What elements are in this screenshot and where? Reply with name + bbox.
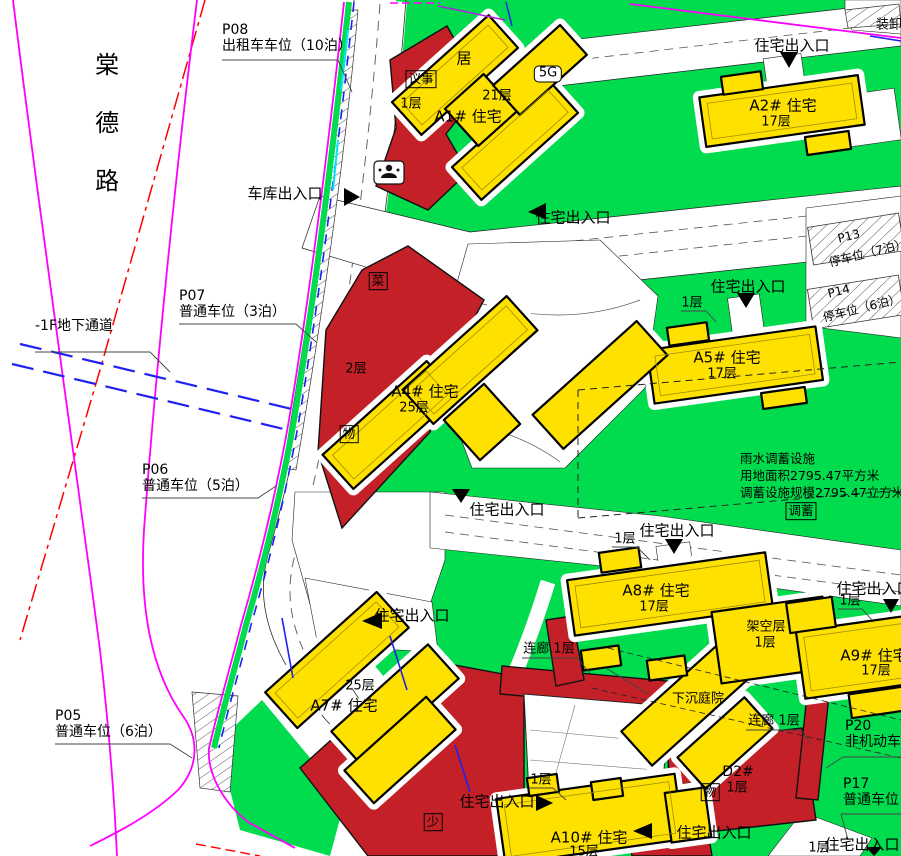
a8-floors: 17层 bbox=[639, 601, 669, 616]
corridor-label-left: 连廊 1层 bbox=[523, 643, 574, 658]
p06-desc: 普通车位（5泊） bbox=[142, 478, 249, 494]
floor-label-a5-podium: 1层 bbox=[681, 297, 702, 312]
stilt-floor-label: 架空层 bbox=[746, 621, 785, 636]
a1-name: A1# 住宅 bbox=[434, 108, 501, 125]
floor-label-a8-podium: 1层 bbox=[614, 533, 635, 548]
entrance-label-a10-left: 住宅出入口 bbox=[459, 793, 534, 810]
a7-floors: 25层 bbox=[345, 680, 375, 695]
entrance-label-top-right: 住宅出入口 bbox=[754, 37, 829, 54]
d2-floors: 1层 bbox=[726, 782, 747, 797]
parking-callout-p06: P06 普通车位（5泊） bbox=[142, 462, 249, 494]
floor-label-a9-podium: 1层 bbox=[839, 595, 860, 610]
loading-label: 装卸 bbox=[876, 19, 901, 34]
p07-id: P07 bbox=[179, 288, 286, 304]
entrance-label-bottom-right: 住宅出入口 bbox=[824, 836, 899, 853]
a8-name: A8# 住宅 bbox=[622, 582, 689, 599]
a9-floors: 17层 bbox=[861, 665, 891, 680]
corridor-label-right: 连廊 1层 bbox=[748, 715, 799, 730]
a5-floors: 17层 bbox=[707, 368, 737, 383]
p08-id: P08 bbox=[222, 22, 352, 38]
a7-name: A7# 住宅 bbox=[310, 697, 377, 714]
p17-desc: 普通车位 bbox=[843, 792, 899, 808]
sunken-courtyard-label: 下沉庭院 bbox=[672, 693, 724, 708]
d2-name: D2# bbox=[722, 764, 753, 780]
entrance-label-a10-right: 住宅出入口 bbox=[676, 824, 751, 841]
p17-id: P17 bbox=[843, 776, 899, 792]
nursery-icon bbox=[374, 161, 404, 184]
p20-desc: 非机动车位 bbox=[845, 734, 901, 750]
p20-id: P20 bbox=[845, 718, 901, 734]
parking-callout-p08: P08 出租车车位（10泊） bbox=[222, 22, 352, 54]
floor-label-a4-podium: 2层 bbox=[345, 363, 366, 378]
parking-callout-p20: P20 非机动车位 bbox=[845, 718, 901, 750]
a1-floors: 21层 bbox=[482, 90, 512, 105]
a2-floors: 17层 bbox=[761, 116, 791, 131]
vegetable-badge: 菜 bbox=[369, 272, 388, 290]
rainwater-line2: 用地面积2795.47平方米 bbox=[740, 467, 901, 484]
rainwater-line1: 雨水调蓄设施 bbox=[740, 450, 901, 467]
road-name: 棠德路 bbox=[90, 52, 118, 226]
p05-id: P05 bbox=[55, 708, 162, 724]
underground-passage-label: -1F地下通道 bbox=[35, 318, 113, 334]
a4-name: A4# 住宅 bbox=[391, 383, 458, 400]
entrance-label-top-center: 住宅出入口 bbox=[535, 209, 610, 226]
parking-callout-p05: P05 普通车位（6泊） bbox=[55, 708, 162, 740]
rainwater-note: 雨水调蓄设施 用地面积2795.47平方米 调蓄设施规模2795.47立方米 bbox=[740, 450, 901, 501]
council-badge: 议事 bbox=[405, 70, 436, 88]
a9-name: A9# 住宅 bbox=[840, 647, 901, 664]
p08-desc: 出租车车位（10泊） bbox=[222, 38, 352, 54]
p07-desc: 普通车位（3泊） bbox=[179, 304, 286, 320]
rainwater-line3: 调蓄设施规模2795.47立方米 bbox=[740, 484, 901, 501]
a4-floors: 25层 bbox=[399, 402, 429, 417]
storage-badge: 调蓄 bbox=[785, 502, 816, 520]
p05-desc: 普通车位（6泊） bbox=[55, 724, 162, 740]
property-badge-a4: 物 bbox=[340, 425, 359, 443]
a10-floors: 15层 bbox=[569, 846, 599, 856]
floor-label-bottom-right: 1层 bbox=[808, 842, 829, 856]
entrance-label-center: 住宅出入口 bbox=[469, 501, 544, 518]
entrance-label-a8: 住宅出入口 bbox=[639, 522, 714, 539]
p06-id: P06 bbox=[142, 462, 249, 478]
entrance-label-a5: 住宅出入口 bbox=[710, 278, 785, 295]
parking-callout-p07: P07 普通车位（3泊） bbox=[179, 288, 286, 320]
parking-callout-p17: P17 普通车位 bbox=[843, 776, 899, 808]
site-plan: 棠德路 P08 出租车车位（10泊） P07 普通车位（3泊） P06 普通车位… bbox=[0, 0, 901, 856]
garage-entrance-label: 车库出入口 bbox=[247, 185, 322, 202]
a5-name: A5# 住宅 bbox=[693, 349, 760, 366]
residence-badge: 居 bbox=[456, 50, 471, 67]
entrance-label-a7: 住宅出入口 bbox=[374, 607, 449, 624]
a2-name: A2# 住宅 bbox=[749, 97, 816, 114]
stilt-floor1-label: 1层 bbox=[754, 637, 775, 652]
g5-badge: 5G bbox=[534, 66, 562, 83]
youth-badge: 少 bbox=[424, 813, 443, 831]
property-badge-d2: 物 bbox=[701, 783, 720, 801]
floor-label-a1-podium: 1层 bbox=[400, 98, 421, 113]
floor-label-a10-podium: 1层 bbox=[530, 774, 551, 789]
